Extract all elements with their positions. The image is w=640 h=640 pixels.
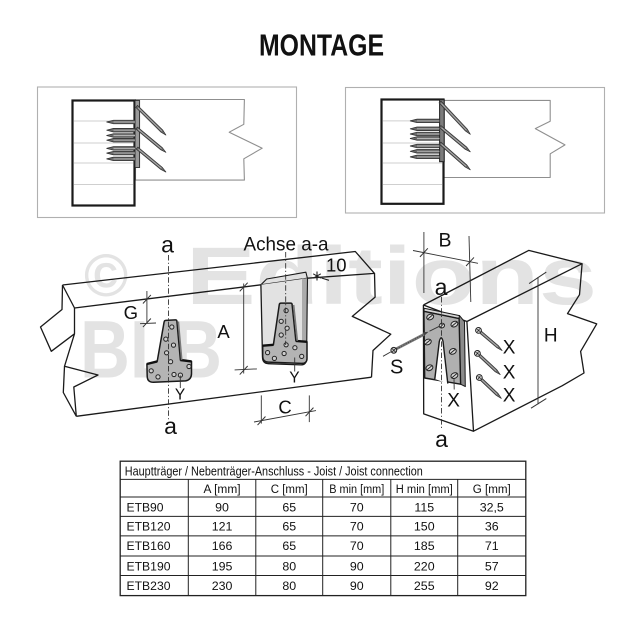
svg-text:90: 90 xyxy=(215,500,229,514)
svg-text:70: 70 xyxy=(350,500,364,514)
svg-text:G: G xyxy=(124,302,138,323)
svg-text:C [mm]: C [mm] xyxy=(271,482,308,496)
svg-text:115: 115 xyxy=(414,500,434,514)
svg-text:70: 70 xyxy=(350,539,364,553)
svg-text:65: 65 xyxy=(282,520,296,534)
svg-text:90: 90 xyxy=(350,579,364,593)
svg-text:A: A xyxy=(217,321,230,342)
svg-text:80: 80 xyxy=(282,559,296,573)
svg-text:ETB230: ETB230 xyxy=(127,579,171,593)
svg-text:65: 65 xyxy=(282,539,296,553)
svg-text:©: © xyxy=(84,242,128,309)
svg-text:B: B xyxy=(438,229,451,251)
svg-text:a: a xyxy=(161,232,174,258)
svg-text:80: 80 xyxy=(282,579,296,593)
svg-text:255: 255 xyxy=(414,579,435,593)
svg-text:Y: Y xyxy=(175,387,185,404)
svg-text:X: X xyxy=(447,390,460,411)
svg-text:ETB120: ETB120 xyxy=(127,520,171,534)
svg-text:G [mm]: G [mm] xyxy=(473,482,511,496)
svg-text:Y: Y xyxy=(289,370,299,387)
svg-text:230: 230 xyxy=(212,579,233,593)
svg-text:195: 195 xyxy=(212,559,233,573)
svg-text:57: 57 xyxy=(485,559,499,573)
svg-text:a: a xyxy=(435,426,448,452)
svg-text:ETB160: ETB160 xyxy=(127,539,171,553)
svg-text:B min [mm]: B min [mm] xyxy=(329,482,384,496)
svg-text:a: a xyxy=(435,274,448,300)
svg-text:32,5: 32,5 xyxy=(480,500,504,514)
svg-text:121: 121 xyxy=(212,520,233,534)
svg-text:185: 185 xyxy=(414,539,435,553)
svg-text:70: 70 xyxy=(350,520,364,534)
svg-text:10: 10 xyxy=(326,255,347,276)
svg-text:166: 166 xyxy=(212,539,233,553)
svg-text:Hauptträger / Nebenträger-Ansc: Hauptträger / Nebenträger-Anschluss - Jo… xyxy=(125,465,423,479)
svg-text:ETB90: ETB90 xyxy=(127,500,164,514)
svg-text:C: C xyxy=(278,397,291,418)
svg-text:71: 71 xyxy=(485,539,499,553)
svg-text:90: 90 xyxy=(350,559,364,573)
svg-text:X: X xyxy=(503,337,516,358)
svg-text:92: 92 xyxy=(485,579,499,593)
svg-text:X: X xyxy=(503,362,516,383)
svg-text:220: 220 xyxy=(414,559,435,573)
svg-text:H: H xyxy=(544,326,558,347)
svg-text:S: S xyxy=(390,357,403,379)
svg-text:ETB190: ETB190 xyxy=(127,559,171,573)
svg-text:Achse a-a: Achse a-a xyxy=(244,233,329,255)
svg-text:MONTAGE: MONTAGE xyxy=(259,28,384,63)
svg-text:65: 65 xyxy=(282,500,296,514)
svg-text:A [mm]: A [mm] xyxy=(204,482,241,496)
svg-text:H min [mm]: H min [mm] xyxy=(396,482,453,496)
svg-text:a: a xyxy=(164,413,177,439)
svg-text:150: 150 xyxy=(414,520,435,534)
svg-text:X: X xyxy=(503,386,516,407)
svg-text:36: 36 xyxy=(485,520,499,534)
